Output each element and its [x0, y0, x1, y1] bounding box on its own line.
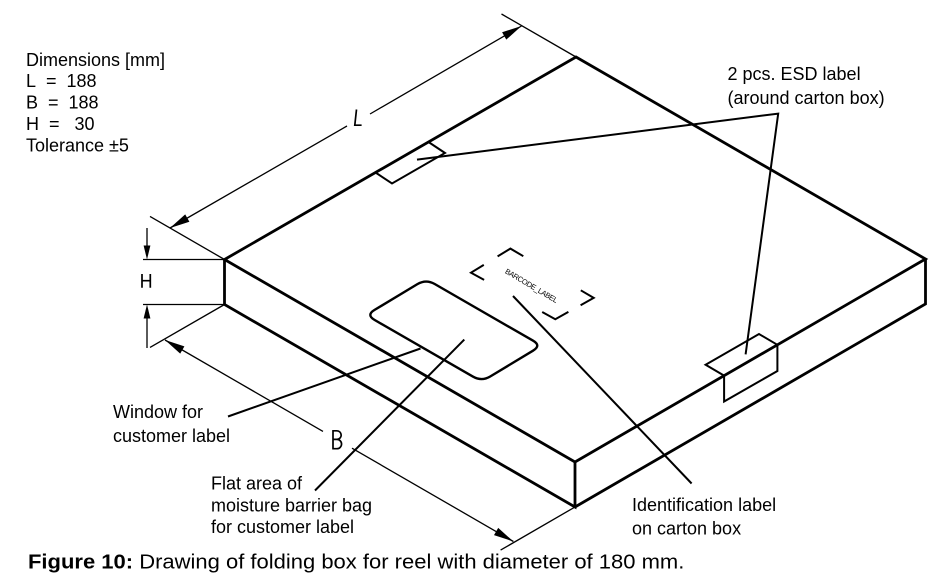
svg-text:Window for: Window for	[113, 402, 203, 422]
svg-text:Identification label: Identification label	[632, 495, 776, 515]
svg-text:L = 188: L = 188	[26, 71, 97, 91]
svg-text:customer label: customer label	[113, 426, 230, 446]
svg-text:BARCODE_LABEL: BARCODE_LABEL	[503, 267, 559, 305]
svg-text:Flat area of: Flat area of	[211, 474, 303, 494]
svg-text:(around carton box): (around carton box)	[728, 88, 885, 108]
svg-text:B = 188: B = 188	[26, 93, 99, 113]
svg-text:for customer label: for customer label	[211, 517, 354, 537]
svg-text:Tolerance ±5: Tolerance ±5	[26, 135, 129, 155]
svg-text:Figure 10: Drawing of folding: Figure 10: Drawing of folding box for re…	[28, 550, 684, 573]
svg-text:moisture barrier bag: moisture barrier bag	[211, 496, 372, 516]
svg-text:2 pcs. ESD label: 2 pcs. ESD label	[728, 64, 861, 84]
svg-text:on carton box: on carton box	[632, 519, 741, 539]
svg-text:Dimensions [mm]: Dimensions [mm]	[26, 50, 165, 70]
svg-text:H = 30: H = 30	[26, 114, 95, 134]
